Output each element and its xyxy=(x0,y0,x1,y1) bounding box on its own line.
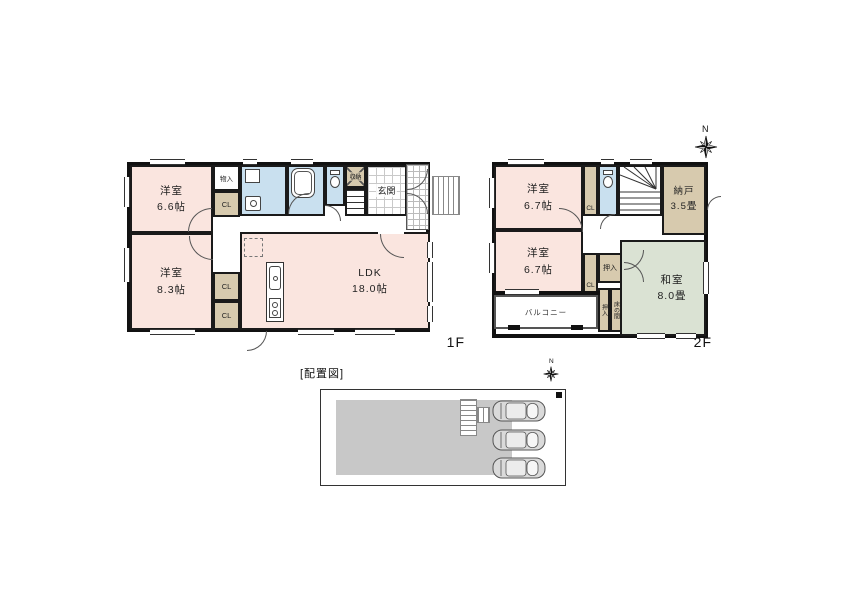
room-label: 洋室 6.7帖 xyxy=(524,245,553,278)
entrance-step xyxy=(432,176,460,215)
toilet-icon xyxy=(330,170,340,175)
refrigerator-icon xyxy=(244,238,263,257)
closet-label: 押入 xyxy=(603,263,617,273)
room-1f-monoire: 物入 xyxy=(213,165,240,191)
compass-north-label: N xyxy=(549,358,554,365)
car-top-view-icon xyxy=(492,428,546,452)
kitchen-sink-icon xyxy=(269,266,281,290)
room-2f-yoshitsu-b: 洋室 6.7帖 xyxy=(494,230,583,293)
room-1f-genkan: 玄関 xyxy=(366,165,407,216)
room-2f-nando: 納戸 3.5畳 xyxy=(662,165,706,235)
window xyxy=(150,159,185,165)
door-arc xyxy=(707,196,721,210)
car-top-view-icon xyxy=(492,399,546,423)
balcony-label: バルコニー xyxy=(525,307,567,318)
room-size: 6.6帖 xyxy=(157,199,186,215)
room-label: 納戸 3.5畳 xyxy=(671,185,698,214)
window xyxy=(124,177,130,207)
floor1-label: 1F xyxy=(420,334,465,350)
window xyxy=(150,329,195,335)
compass-rose-icon xyxy=(543,366,559,382)
floor2-label: 2F xyxy=(670,334,712,350)
window xyxy=(637,333,665,339)
window xyxy=(601,159,614,165)
room-name: 洋室 xyxy=(524,181,553,197)
room-label: 洋室 8.3帖 xyxy=(157,265,186,298)
room-name: LDK xyxy=(352,265,388,281)
room-name: 洋室 xyxy=(157,265,186,281)
closet-label: CL xyxy=(222,282,232,291)
toilet-icon xyxy=(603,170,613,175)
room-1f-cl-b: CL xyxy=(213,272,240,301)
closet-label: CL xyxy=(222,311,232,320)
washbasin-icon xyxy=(245,196,261,211)
window xyxy=(630,159,652,165)
window xyxy=(489,178,495,208)
room-label: 和室 8.0畳 xyxy=(657,272,686,305)
balcony-corner-mark xyxy=(571,325,583,330)
window xyxy=(489,243,495,273)
toilet-icon xyxy=(603,176,613,188)
stairs-lines xyxy=(620,167,660,214)
stairs-icon xyxy=(618,165,662,216)
closet-label: 物入 xyxy=(220,173,233,183)
compass-rose-icon xyxy=(694,135,718,159)
washing-machine-icon xyxy=(245,169,260,183)
entrance-porch-steps xyxy=(460,399,477,436)
window xyxy=(703,262,709,294)
floorplan-page: 洋室 6.6帖 物入 CL 収納 玄関 洋室 8.3帖 CL xyxy=(0,0,842,595)
site-plan-title: [配置図] xyxy=(300,365,344,381)
room-2f-tokonoma: 床の間 xyxy=(610,288,622,332)
balcony-corner-mark xyxy=(508,325,520,330)
door-arc xyxy=(247,331,267,351)
room-size: 3.5畳 xyxy=(671,200,698,215)
room-name: 洋室 xyxy=(157,183,186,199)
room-2f-oshiire: 押入 xyxy=(598,253,622,283)
room-name: 和室 xyxy=(657,272,686,288)
stairs-icon xyxy=(345,188,366,216)
closet-label: CL xyxy=(586,205,594,212)
toilet-icon xyxy=(330,176,340,188)
balcony: バルコニー xyxy=(494,295,598,329)
closet-label: 押入 xyxy=(600,304,609,316)
room-1f-cl-a: CL xyxy=(213,191,240,217)
room-size: 6.7帖 xyxy=(524,262,553,278)
window xyxy=(505,289,539,295)
window xyxy=(427,262,433,302)
room-size: 8.0畳 xyxy=(657,288,686,304)
window xyxy=(243,159,257,165)
room-size: 8.3帖 xyxy=(157,282,186,298)
entrance-label: 玄関 xyxy=(376,184,396,197)
room-label: 洋室 6.7帖 xyxy=(524,181,553,214)
site-boundary-marker xyxy=(556,392,562,398)
closet-label: CL xyxy=(222,200,232,209)
storage-label: 収納 xyxy=(349,172,361,181)
window xyxy=(355,329,395,335)
window xyxy=(508,159,544,165)
window xyxy=(291,159,313,165)
room-label: 洋室 6.6帖 xyxy=(157,183,186,216)
stove-icon xyxy=(269,298,281,318)
tokonoma-label: 床の間 xyxy=(612,301,621,319)
window xyxy=(298,329,334,335)
room-name: 洋室 xyxy=(524,245,553,261)
room-1f-shunou: 収納 xyxy=(345,165,366,188)
room-label: LDK 18.0帖 xyxy=(352,265,388,298)
car-top-view-icon xyxy=(492,456,546,480)
room-name: 納戸 xyxy=(671,185,698,200)
window xyxy=(124,248,130,282)
window xyxy=(427,306,433,322)
entrance-approach xyxy=(477,407,490,423)
room-size: 6.7帖 xyxy=(524,198,553,214)
compass-north-label: N xyxy=(702,124,709,134)
room-2f-cl-a: CL xyxy=(583,165,598,216)
window xyxy=(427,242,433,258)
room-1f-cl-c: CL xyxy=(213,301,240,330)
room-2f-cl-b: CL xyxy=(583,253,598,293)
closet-label: CL xyxy=(586,282,594,289)
room-size: 18.0帖 xyxy=(352,281,388,297)
